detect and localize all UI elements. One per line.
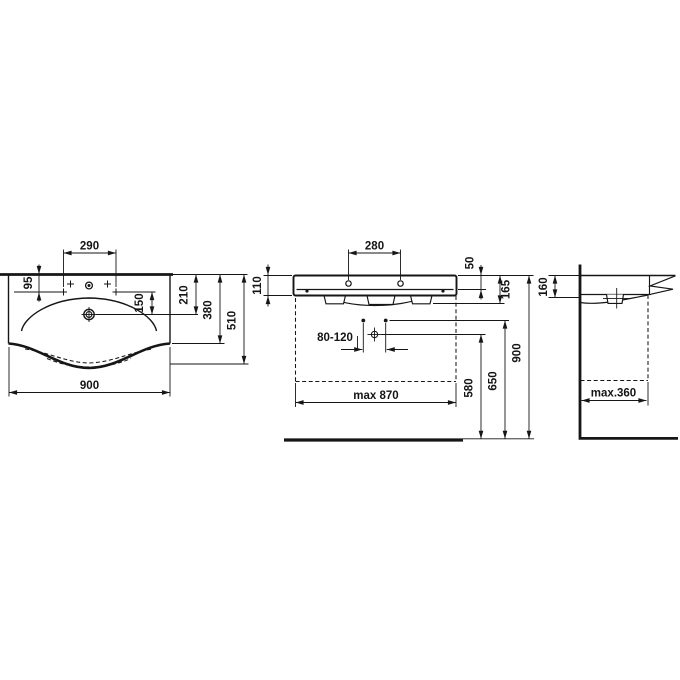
edge-dot-left xyxy=(305,289,308,292)
dim-650: 650 xyxy=(488,321,506,439)
dim-label-50: 50 xyxy=(465,257,477,270)
dim-50: 50 xyxy=(465,257,482,300)
dim-210: 210 xyxy=(179,275,197,315)
dim-label-150: 150 xyxy=(134,293,146,312)
dim-label-max-360: max.360 xyxy=(591,388,636,400)
fixing-bolt-left xyxy=(361,319,365,323)
dim-max-870: max 870 xyxy=(296,383,457,407)
dim-80-120: 80-120 xyxy=(317,323,408,353)
technical-drawing-canvas: 290 95 150 210 380 xyxy=(0,0,680,680)
dim-900-width: 900 xyxy=(9,347,170,397)
dim-label-510: 510 xyxy=(227,311,239,330)
drain-hole xyxy=(82,307,97,322)
dim-label-380: 380 xyxy=(203,300,215,319)
drain-cross-side xyxy=(603,288,631,309)
dim-label-80-120: 80-120 xyxy=(317,332,353,344)
basin-front-hidden-curve-2 xyxy=(47,359,131,368)
dim-label-580: 580 xyxy=(464,378,476,397)
view-side: 160 max.360 xyxy=(538,265,678,439)
dim-160: 160 xyxy=(538,276,579,298)
dim-290: 290 xyxy=(64,241,117,288)
dim-label-900-width: 900 xyxy=(80,380,99,392)
dim-110: 110 xyxy=(252,265,292,307)
dim-95: 95 xyxy=(14,265,61,302)
dim-380: 380 xyxy=(172,275,225,344)
dim-label-165: 165 xyxy=(501,279,513,299)
basin-front-hidden-curve-1 xyxy=(25,349,153,363)
view-top: 290 95 150 210 380 xyxy=(0,241,249,397)
siphon-tab-side xyxy=(607,295,624,304)
fixing-bolt-right xyxy=(384,319,388,323)
dim-label-210: 210 xyxy=(179,285,191,304)
dim-280: 280 xyxy=(349,241,401,281)
edge-dot-right xyxy=(441,289,444,292)
dim-165: 165 xyxy=(500,276,513,304)
basin-front-curve xyxy=(9,344,171,369)
view-front-elevation: 80-120 max 870 280 110 xyxy=(252,241,534,441)
waste-outlet-crosshair xyxy=(368,328,382,342)
dim-label-95: 95 xyxy=(23,276,35,289)
dim-label-650: 650 xyxy=(488,371,500,390)
dim-label-110: 110 xyxy=(252,276,264,295)
fixing-tab-left xyxy=(324,296,346,304)
dim-max-360: max.360 xyxy=(582,382,649,406)
wall-floor-corner xyxy=(580,265,678,439)
dim-150: 150 xyxy=(120,292,156,315)
siphon-tab-center xyxy=(367,296,395,305)
dim-label-900-height: 900 xyxy=(512,343,524,362)
dim-label-290: 290 xyxy=(80,241,99,253)
washbasin-dimension-drawing: 290 95 150 210 380 xyxy=(0,0,680,680)
tap-hole-center xyxy=(88,284,91,287)
basin-body xyxy=(294,276,457,296)
dim-label-max-870: max 870 xyxy=(353,390,398,402)
fixing-tab-right xyxy=(411,296,433,304)
dim-900-height: 900 xyxy=(512,276,530,439)
dim-580: 580 xyxy=(464,335,482,439)
dim-label-280: 280 xyxy=(365,241,384,253)
dim-label-160: 160 xyxy=(538,277,550,296)
rim-front-profile xyxy=(650,276,676,294)
